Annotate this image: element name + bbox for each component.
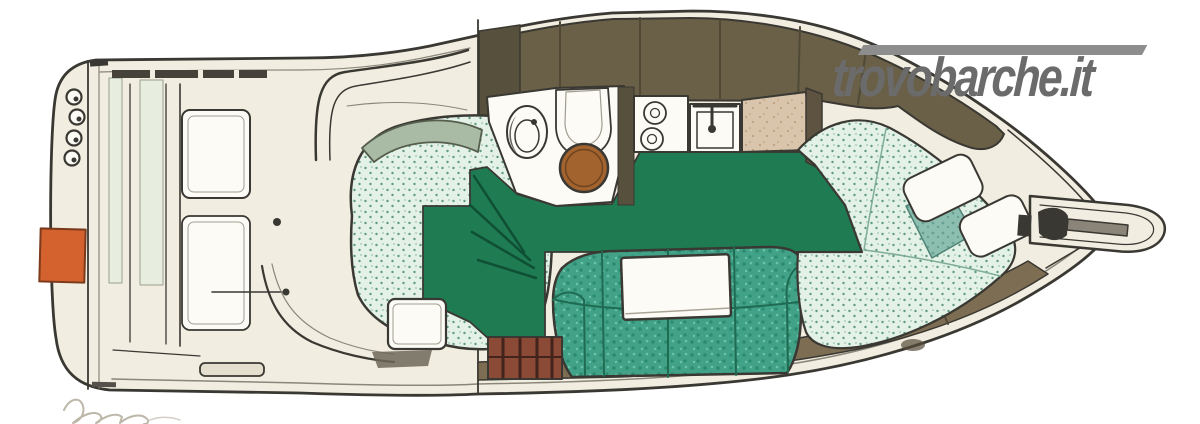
engine-hatch xyxy=(200,363,264,376)
boat-floor-plan-image: trovobarche.it xyxy=(0,0,1200,424)
orange-locker-box xyxy=(39,228,85,282)
deck-hatch xyxy=(182,216,250,330)
transom-tick xyxy=(92,382,116,387)
deck-hatch xyxy=(182,110,250,198)
companionway-cabinet xyxy=(488,337,562,379)
salon-sofa xyxy=(553,247,801,377)
stove-burners xyxy=(634,96,688,152)
watermark-text: trovobarche.it xyxy=(831,50,1094,105)
handwritten-signature xyxy=(64,400,180,424)
bow-pulpit xyxy=(1017,196,1165,252)
round-dinette-table xyxy=(560,144,608,192)
bow-roller xyxy=(1017,215,1031,237)
toilet xyxy=(507,106,547,158)
sofa-table xyxy=(621,254,731,320)
cockpit-side-bench xyxy=(109,78,122,283)
deck-smudge xyxy=(901,339,925,351)
galley-sink xyxy=(690,104,740,152)
galley-bulkhead xyxy=(618,87,634,205)
cockpit-side-bench xyxy=(140,80,163,285)
galley-counter xyxy=(742,92,812,152)
